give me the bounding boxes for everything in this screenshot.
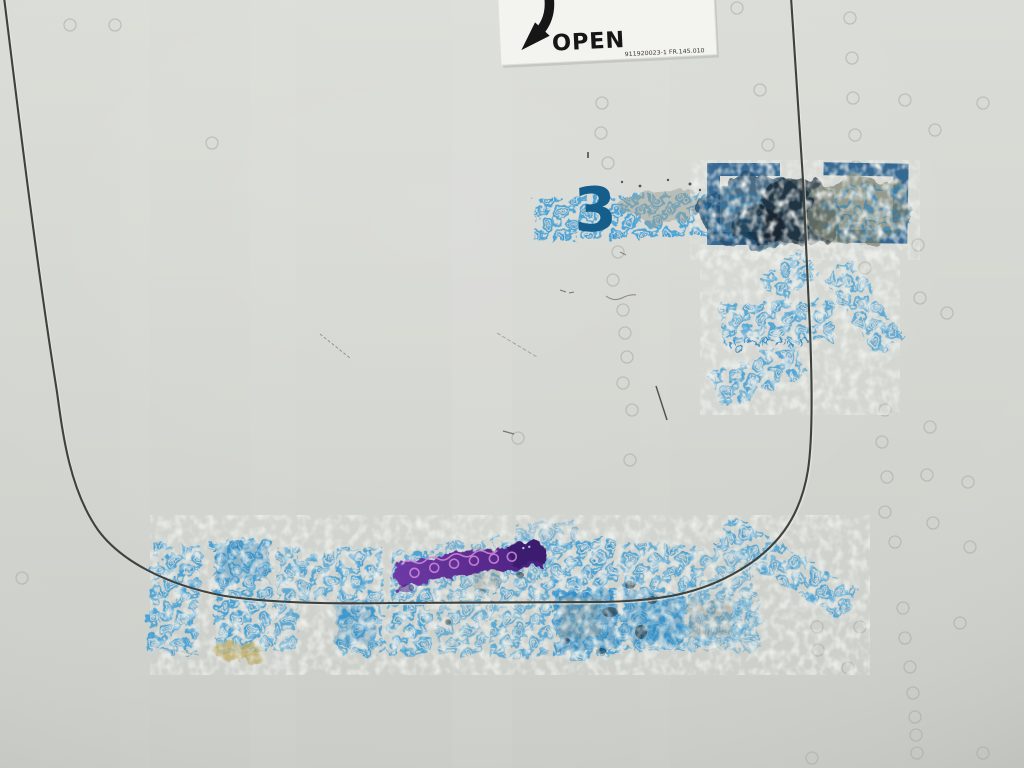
open-placard: OPEN 911920023-1 FR.145.010 xyxy=(497,0,719,68)
worn-mottling-bottom xyxy=(150,515,870,675)
worn-mottling-right xyxy=(700,250,900,415)
placard-open-label: OPEN xyxy=(551,27,625,57)
photo-aircraft-panel: 101 101 xyxy=(0,0,1024,768)
panel-stencil-number: 3 xyxy=(573,174,618,246)
